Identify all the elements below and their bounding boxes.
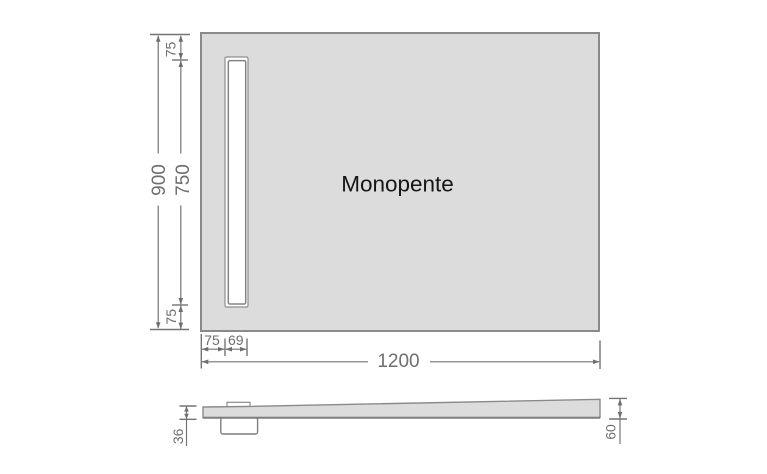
svg-text:Monopente: Monopente bbox=[341, 172, 454, 197]
svg-text:75: 75 bbox=[163, 309, 179, 325]
svg-text:900: 900 bbox=[149, 164, 170, 196]
svg-text:75: 75 bbox=[163, 42, 179, 58]
svg-text:69: 69 bbox=[228, 332, 244, 348]
svg-text:60: 60 bbox=[602, 424, 618, 440]
svg-text:1200: 1200 bbox=[377, 351, 419, 372]
svg-text:750: 750 bbox=[173, 164, 194, 196]
svg-text:75: 75 bbox=[204, 332, 220, 348]
svg-text:36: 36 bbox=[170, 428, 186, 444]
